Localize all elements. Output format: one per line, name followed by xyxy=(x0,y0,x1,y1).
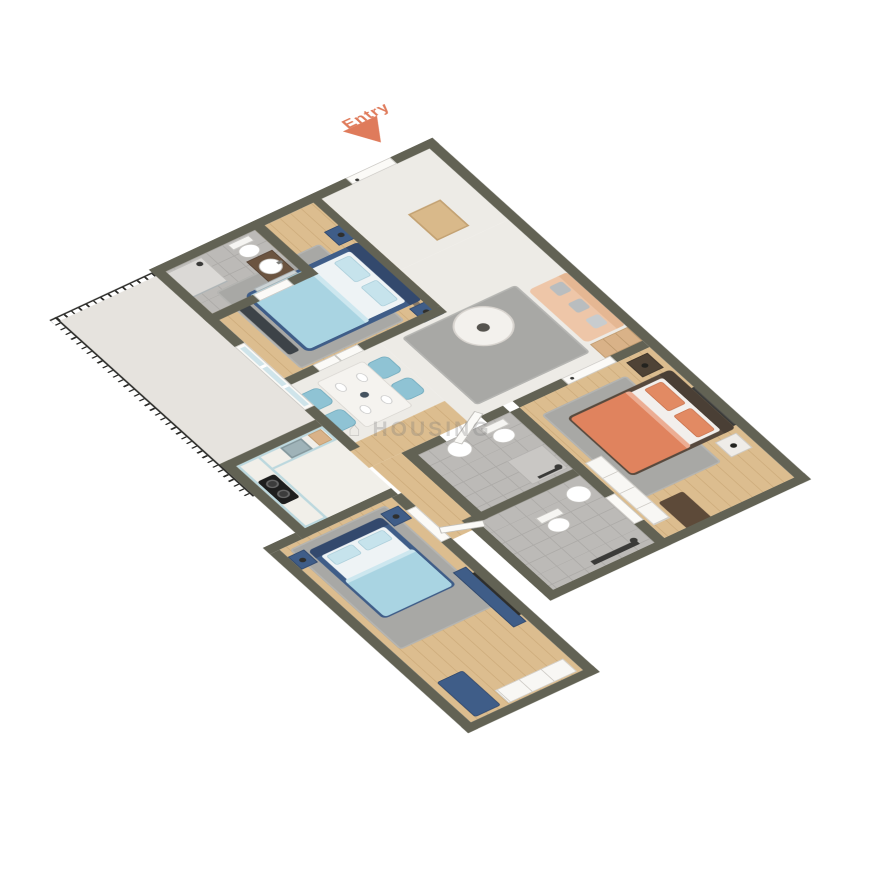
lamp-icon xyxy=(298,557,308,563)
lamp-icon xyxy=(729,442,739,448)
place-setting xyxy=(354,372,371,384)
shower-head-icon xyxy=(195,261,205,267)
lamp-icon xyxy=(640,362,650,368)
lamp-icon xyxy=(336,232,346,238)
centerpiece xyxy=(358,391,371,399)
table-decor xyxy=(474,322,492,334)
watermark: ⌂ HOUSING xyxy=(348,418,492,442)
place-setting xyxy=(332,382,349,394)
lamp-icon xyxy=(391,513,401,519)
burner-icon xyxy=(274,488,292,500)
floorplan-canvas: Entry ⌂ HOUSING xyxy=(0,0,870,870)
door-handle-icon xyxy=(354,178,360,182)
place-setting xyxy=(378,394,395,406)
place-setting xyxy=(357,404,374,416)
door-handle-icon xyxy=(569,376,575,380)
burner-icon xyxy=(263,478,281,490)
